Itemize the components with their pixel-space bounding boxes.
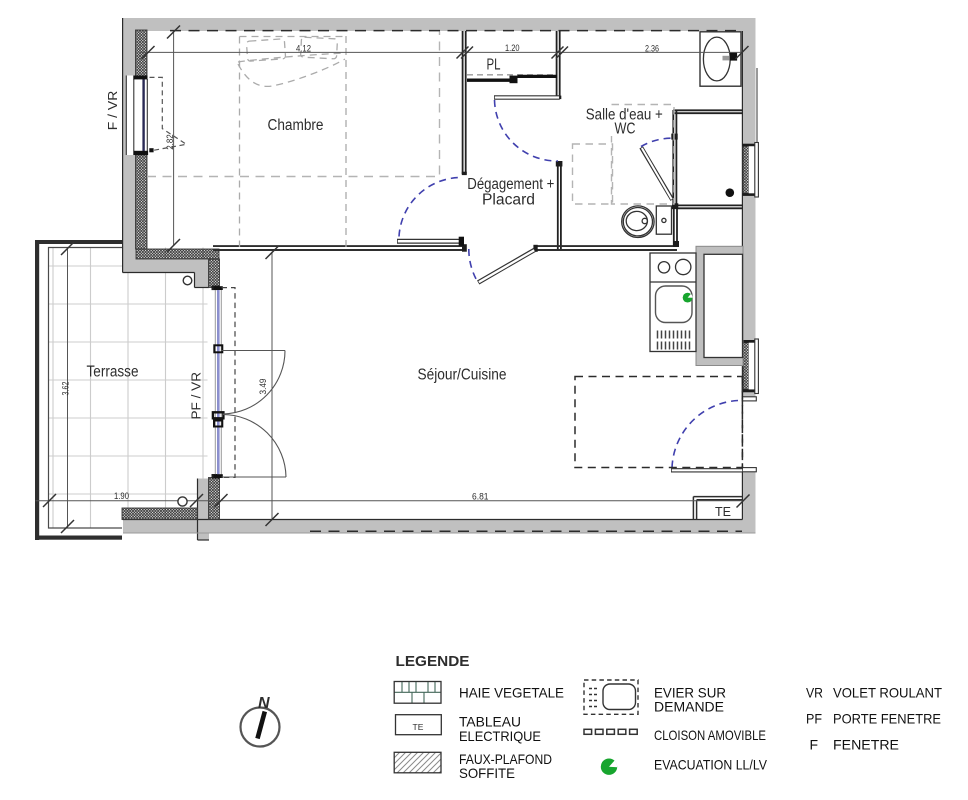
svg-text:1.90: 1.90 (114, 491, 129, 502)
svg-text:2.82: 2.82 (165, 134, 176, 150)
svg-text:Dégagement +: Dégagement + (467, 176, 554, 193)
svg-text:WC: WC (615, 121, 636, 138)
svg-text:3.49: 3.49 (258, 379, 269, 395)
svg-text:DEMANDE: DEMANDE (654, 699, 724, 715)
svg-text:VR: VR (806, 684, 823, 700)
svg-text:F: F (810, 737, 819, 753)
svg-text:1.20: 1.20 (505, 43, 520, 54)
svg-text:LEGENDE: LEGENDE (396, 653, 470, 670)
svg-text:PL: PL (487, 57, 501, 74)
svg-text:TE: TE (715, 504, 731, 519)
svg-text:4.12: 4.12 (296, 44, 311, 55)
svg-text:FENETRE: FENETRE (833, 737, 899, 753)
svg-text:Terrasse: Terrasse (87, 364, 139, 381)
svg-text:F / VR: F / VR (106, 91, 120, 131)
svg-text:TE: TE (413, 722, 424, 732)
svg-text:CLOISON AMOVIBLE: CLOISON AMOVIBLE (654, 727, 766, 743)
svg-text:EVACUATION LL/LV: EVACUATION LL/LV (654, 757, 768, 773)
svg-text:Chambre: Chambre (268, 117, 324, 134)
svg-text:N: N (258, 695, 270, 712)
svg-text:PF / VR: PF / VR (189, 372, 204, 420)
svg-text:PF: PF (806, 711, 822, 727)
svg-text:2.36: 2.36 (645, 44, 659, 55)
svg-text:SOFFITE: SOFFITE (459, 765, 515, 781)
svg-text:PORTE FENETRE: PORTE FENETRE (833, 711, 941, 727)
svg-text:ELECTRIQUE: ELECTRIQUE (459, 728, 541, 744)
svg-text:VOLET ROULANT: VOLET ROULANT (833, 684, 942, 700)
svg-text:3.62: 3.62 (61, 382, 72, 396)
svg-text:6.81: 6.81 (472, 492, 489, 503)
svg-text:HAIE VEGETALE: HAIE VEGETALE (459, 684, 564, 700)
svg-text:Séjour/Cuisine: Séjour/Cuisine (418, 367, 507, 384)
svg-text:Placard: Placard (482, 192, 535, 209)
